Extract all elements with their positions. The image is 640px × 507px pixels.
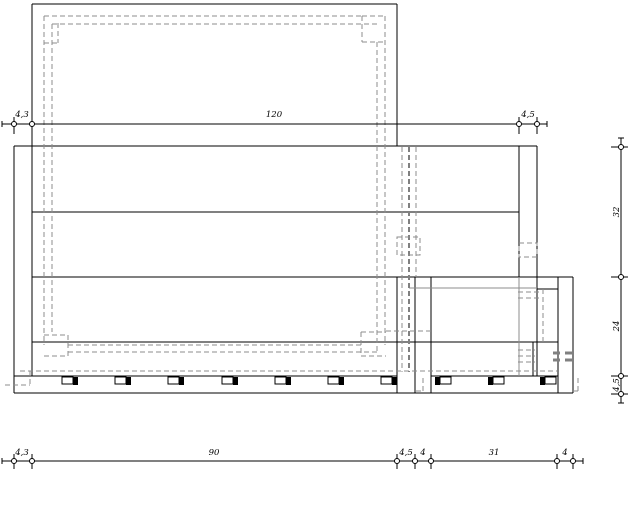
dim-label-bottom-4: 4 bbox=[419, 448, 425, 458]
main-carcass-outline bbox=[14, 146, 573, 393]
plinth-foot bbox=[62, 377, 78, 385]
dim-label-right-3: 4,5 bbox=[612, 378, 622, 393]
dimension-chain-right: 32 24 4,5 bbox=[611, 138, 628, 403]
plinth-foot bbox=[435, 377, 451, 385]
dim-label-bottom-2: 90 bbox=[209, 448, 220, 458]
dim-label-bottom-1: 4,3 bbox=[14, 448, 29, 458]
upper-cabinet-outline bbox=[32, 4, 397, 146]
dimension-chain-top: 4,3 120 4,5 bbox=[2, 110, 547, 134]
plinth-foot bbox=[328, 377, 344, 385]
hidden-back-frame-dashed bbox=[44, 16, 386, 356]
plinth-foot bbox=[275, 377, 291, 385]
plinth-foot bbox=[168, 377, 184, 385]
plinth-foot bbox=[222, 377, 238, 385]
plinth-foot bbox=[488, 377, 504, 385]
right-cabinet-hidden-dashed bbox=[518, 289, 577, 362]
plinth-foot bbox=[115, 377, 131, 385]
plinth-foot bbox=[540, 377, 556, 385]
dim-label-top-left: 4,3 bbox=[14, 110, 29, 120]
dimension-chain-bottom: 4,3 90 4,5 4 31 4 bbox=[2, 448, 583, 469]
drawing-canvas: 4,3 120 4,5 4,3 90 4,5 4 31 4 bbox=[0, 0, 640, 507]
plinth-feet bbox=[62, 377, 556, 385]
hidden-partition-dashed bbox=[386, 147, 537, 372]
dim-label-right-1: 32 bbox=[612, 207, 622, 218]
dim-label-bottom-3: 4,5 bbox=[398, 448, 413, 458]
dim-label-top-width: 120 bbox=[266, 110, 283, 120]
dim-label-bottom-6: 4 bbox=[561, 448, 567, 458]
cad-drawing: 4,3 120 4,5 4,3 90 4,5 4 31 4 bbox=[0, 0, 640, 507]
plinth-foot bbox=[381, 377, 397, 385]
dim-label-bottom-5: 31 bbox=[489, 448, 500, 458]
dim-label-top-right: 4,5 bbox=[520, 110, 535, 120]
dim-label-right-2: 24 bbox=[612, 321, 622, 333]
